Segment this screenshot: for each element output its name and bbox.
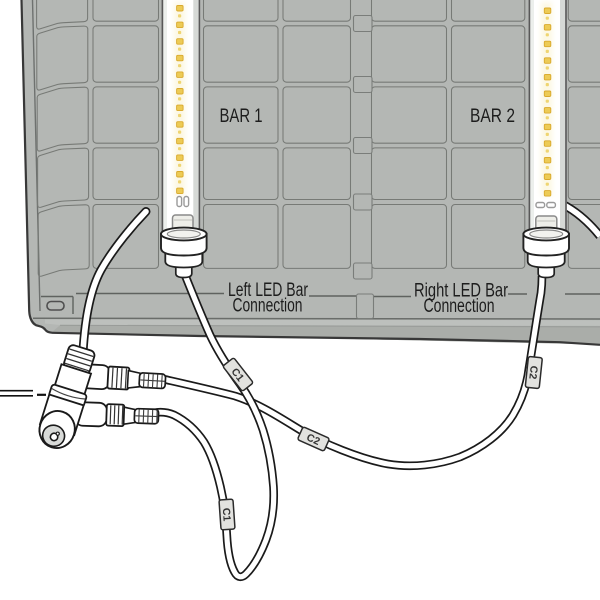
svg-text:C1: C1 [220,507,233,521]
svg-text:Connection: Connection [233,296,303,317]
svg-text:BAR 1: BAR 1 [220,106,263,127]
svg-text:BAR 2: BAR 2 [470,106,515,127]
svg-text:Connection: Connection [424,296,495,317]
svg-text:C2: C2 [526,365,539,380]
